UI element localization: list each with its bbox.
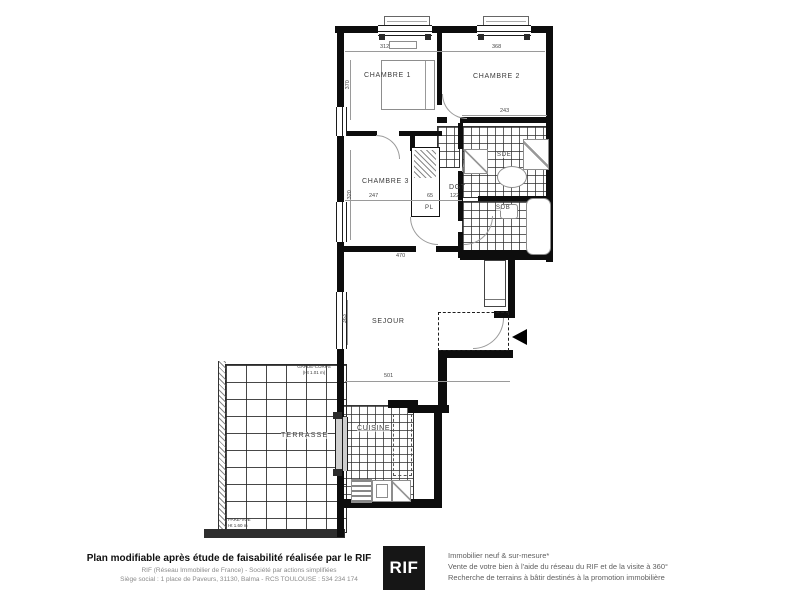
terrace-door-cap-top <box>333 412 342 419</box>
wall-sejour-bottom <box>438 350 513 358</box>
wall-kitchen-right <box>434 410 442 503</box>
sdb-bathtub <box>526 198 551 255</box>
dim-line-top <box>345 51 545 52</box>
dim-dgt-width: 122 <box>450 194 459 200</box>
footer-subline1: RIF (Réseau Immobilier de France) - Soci… <box>79 567 399 574</box>
bed-chambre1 <box>381 60 435 110</box>
dim-line-sejour <box>345 381 510 382</box>
dim-pl-width: 65 <box>427 194 433 200</box>
pare-vue-wall <box>204 529 345 538</box>
dim-chambre1-depth: 370 <box>346 80 352 89</box>
wall-chambre1-bottom-right <box>399 131 442 136</box>
pl-closet-hatch <box>414 150 436 178</box>
rif-logo: RIF <box>383 546 425 590</box>
dim-sejour-width: 501 <box>384 374 393 380</box>
shutter-box-right-2 <box>524 34 530 40</box>
garde-corps-note: GARDE-CORPS (Ht 1.01 m) <box>288 364 340 375</box>
dim-chambre3-depth: 320 <box>348 190 354 199</box>
footer-tagline2: Vente de votre bien à l'aide du réseau d… <box>448 562 668 571</box>
pare-vue-line2: Ht 1.60 m <box>228 523 248 528</box>
entrance-arrow-icon <box>512 329 527 345</box>
wall-entry-right <box>508 258 515 315</box>
wall-dgt-bottom <box>436 246 462 252</box>
dim-sejour-window: 363 <box>343 314 349 323</box>
dim-chambre1-width: 312 <box>380 45 389 51</box>
entry-vestibule-outline <box>438 312 509 351</box>
radiator-chambre1 <box>389 41 417 49</box>
sde-shower <box>523 139 549 170</box>
room-label-sde: SDE <box>497 152 511 158</box>
room-label-chambre1: CHAMBRE 1 <box>364 72 411 79</box>
dim-chambre3-total: 470 <box>396 254 405 260</box>
room-label-terrasse: TERRASSE <box>281 432 328 439</box>
dim-chambre2-width: 368 <box>492 45 501 51</box>
dim-line-chambre2-recess <box>462 115 547 116</box>
dim-line-left-upper <box>350 60 351 120</box>
wall-chambre3-bottom <box>340 246 416 252</box>
room-label-pl: PL <box>425 205 434 211</box>
kitchen-wall-cabinets <box>393 414 412 476</box>
rif-logo-text: RIF <box>390 558 419 578</box>
footer-headline: Plan modifiable après étude de faisabili… <box>69 553 389 564</box>
room-label-cuisine: CUISINE <box>357 425 390 432</box>
footer-tagline3: Recherche de terrains à bâtir destinés à… <box>448 573 665 582</box>
wall-chambre2-bottom-stub <box>437 117 447 123</box>
door-arc-chambre3 <box>410 217 438 245</box>
shutter-box-left-2 <box>478 34 484 40</box>
shutter-box-right-1 <box>425 34 431 40</box>
bed-headboard-line <box>425 61 426 109</box>
garde-corps-line1: GARDE-CORPS <box>297 364 331 369</box>
terrasse-floor-grid <box>225 364 347 533</box>
pare-vue-line1: PARE-VUE <box>228 517 251 522</box>
terrace-bay-door <box>335 417 348 471</box>
dim-chambre2-recess: 243 <box>500 109 509 115</box>
wall-chambre2-bottom <box>460 117 553 123</box>
room-label-chambre2: CHAMBRE 2 <box>473 73 520 80</box>
dim-chambre3-width: 247 <box>369 194 378 200</box>
entry-closet <box>484 260 506 307</box>
wall-kitchen-top <box>388 400 418 408</box>
window-left-upper <box>336 107 347 136</box>
room-label-chambre3: CHAMBRE 3 <box>362 178 409 185</box>
wall-bath-left-lower <box>458 232 463 258</box>
wall-bath-left-upper <box>458 123 463 149</box>
door-arc-chambre1 <box>376 135 400 159</box>
room-label-sejour: SEJOUR <box>372 318 405 325</box>
sde-washing-machine <box>464 149 488 174</box>
pare-vue-note: PARE-VUE Ht 1.60 m <box>228 517 270 528</box>
terrasse-side-screen <box>218 361 226 532</box>
footer-subline2: Siège social : 1 place de Paveurs, 31130… <box>79 576 399 583</box>
footer-tagline1: Immobilier neuf & sur-mesure* <box>448 551 549 560</box>
wall-notch-vertical <box>438 355 447 412</box>
window-chambre3 <box>336 202 347 242</box>
kitchen-stove <box>392 480 411 502</box>
window-chambre2 <box>477 25 531 36</box>
shutter-box-left-1 <box>379 34 385 40</box>
room-label-sdb: SDB <box>496 205 510 211</box>
kitchen-sink <box>372 480 392 502</box>
dim-line-middle <box>345 200 462 201</box>
room-label-dgt: DGT <box>449 184 466 191</box>
floor-plan-page: 312 368 243 247 65 122 470 501 370 320 3… <box>0 0 800 600</box>
terrace-door-cap-bottom <box>333 469 342 476</box>
kitchen-dishwasher <box>351 479 372 503</box>
garde-corps-line2: (Ht 1.01 m) <box>303 370 326 375</box>
window-chambre1 <box>378 25 432 36</box>
